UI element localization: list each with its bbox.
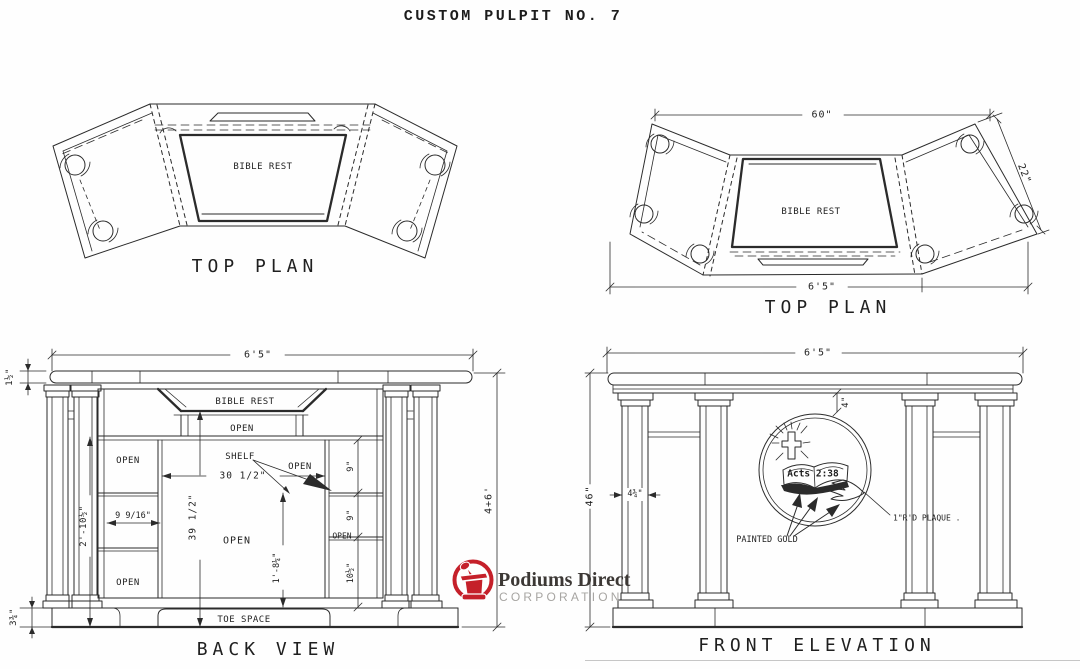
dim-column-width: 4¾"	[627, 489, 642, 499]
top-plan-right-drawing	[630, 124, 1038, 276]
top-plan-left-view: BIBLE REST TOP PLAN	[30, 88, 480, 283]
dim-back-height: 39 1/2"	[188, 493, 199, 540]
front-elevation-view: 6'5" 46" 4" 4¾" Acts 2:38 PAINTED GOLD 1…	[580, 344, 1080, 669]
front-elevation-title: FRONT ELEVATION	[698, 635, 936, 656]
toe-space-label: TOE SPACE	[217, 615, 270, 625]
plaque-scripture-text: Acts 2:38	[787, 469, 839, 480]
top-plan-right-view: 60" 22" 6'5" BIBLE REST TOP PLAN	[600, 82, 1080, 320]
drawing-sheet: CUSTOM PULPIT NO. 7	[0, 0, 1080, 669]
dim-plaque-from-top: 4"	[841, 396, 851, 408]
dim-shelf-width: 30 1/2"	[219, 471, 266, 482]
top-plan-left-drawing	[53, 104, 457, 258]
dim-base-height: 3¾"	[9, 608, 19, 626]
open-center: OPEN	[223, 536, 251, 547]
dim-overall-width: 6'5"	[804, 348, 832, 359]
logo-subtitle-text: CORPORATION	[499, 590, 623, 604]
dim-top-thickness: 1½"	[4, 368, 15, 386]
dim-left-opening-width: 9 9/16"	[115, 511, 151, 521]
back-view: 6'5" 1½" 4+6' BIBLE REST OPEN OPEN OPEN …	[0, 345, 530, 669]
bible-rest-label: BIBLE REST	[233, 162, 292, 172]
bible-rest-label: BIBLE REST	[215, 397, 274, 407]
top-plan-right-title: TOP PLAN	[765, 297, 892, 318]
dim-right-shelf-top: 9"	[346, 460, 356, 472]
dim-overall-height: 4+6'	[484, 486, 495, 514]
shelf-label: SHELF	[225, 452, 255, 462]
painted-gold-label: PAINTED GOLD	[736, 535, 797, 545]
dim-6ft5in: 6'5"	[808, 282, 836, 293]
bible-rest-label: BIBLE REST	[781, 207, 840, 217]
dim-overall-width: 6'5"	[244, 350, 272, 361]
scan-edge-line	[585, 660, 1080, 661]
top-plan-left-title: TOP PLAN	[192, 256, 319, 277]
dim-60in: 60"	[811, 110, 832, 121]
dim-22in: 22"	[1015, 162, 1033, 186]
back-view-structure	[43, 371, 472, 627]
back-view-title: BACK VIEW	[197, 639, 340, 660]
dim-right-shelf-mid: 9"	[346, 509, 356, 521]
open-right-column: OPEN	[332, 532, 351, 541]
open-left-bottom: OPEN	[116, 578, 140, 588]
logo-brand-text: Podiums Direct	[498, 569, 631, 591]
dim-open-height: 2'-10½"	[78, 505, 89, 546]
dim-center-opening-height: 1'-8¼"	[272, 553, 282, 584]
podiums-direct-logo: Podiums Direct CORPORATION	[448, 556, 660, 612]
open-under-bible-rest: OPEN	[230, 424, 254, 434]
sheet-title: CUSTOM PULPIT NO. 7	[404, 8, 623, 25]
open-right-of-shelf: OPEN	[288, 462, 312, 472]
plaque-note-label: 1"R'D PLAQUE .	[893, 514, 960, 523]
dim-right-shelf-bottom: 10½"	[345, 563, 356, 583]
dim-overall-height: 46"	[585, 485, 596, 506]
open-left-top: OPEN	[116, 456, 140, 466]
